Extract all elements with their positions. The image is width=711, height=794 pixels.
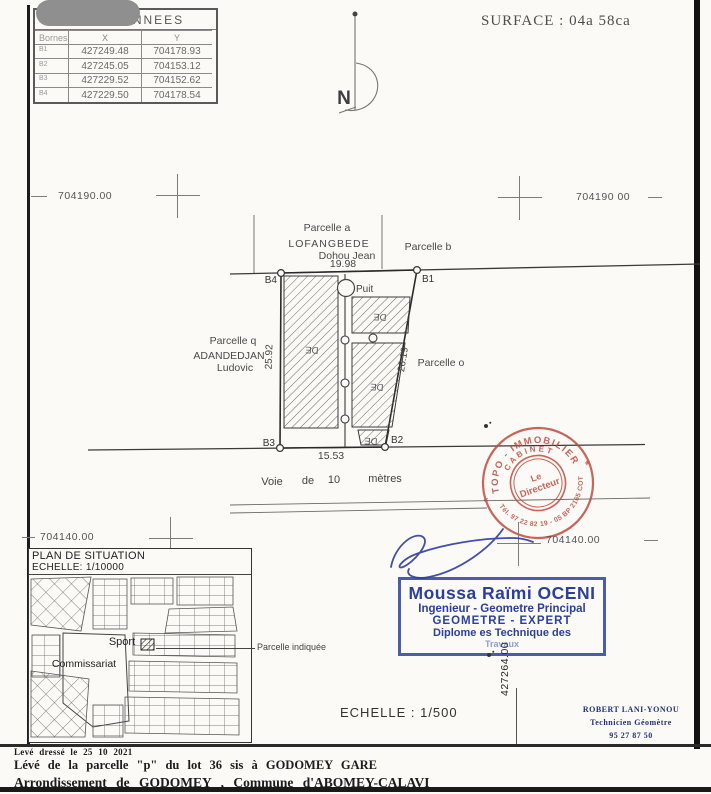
col-header-x: X <box>68 30 141 44</box>
corner-b2-marker <box>382 444 389 451</box>
map-block <box>165 607 237 633</box>
map-block <box>125 697 239 735</box>
grid-label-704190-right: 704190 00 <box>576 191 630 203</box>
corner-label-b2: B2 <box>391 435 404 446</box>
situation-map-title: PLAN DE SITUATION <box>29 549 251 562</box>
boundary-marker <box>369 334 377 342</box>
pencil-mark <box>487 653 492 658</box>
neighbor-owner-firstname: Ludovic <box>217 362 253 374</box>
map-indicated-parcel <box>141 639 154 650</box>
coordinates-grid: Bornes X Y B1 427249.48 704178.93 B2 427… <box>35 30 216 102</box>
neighbor-owner-name: LOFANGBEDE <box>288 238 369 250</box>
neighbor-parcelle-o: Parcelle o <box>418 357 465 369</box>
footer-date-line: Levé dressé le 25 10 2021 <box>14 747 430 757</box>
grid-tick <box>22 537 35 538</box>
map-block <box>32 635 60 677</box>
technician-role: Technicien Géomètre <box>576 717 686 730</box>
map-block <box>93 579 127 629</box>
boundary-marker <box>341 379 349 387</box>
corner-b3-marker <box>277 445 284 452</box>
road-edge-line <box>230 508 487 513</box>
well-circle <box>338 280 355 297</box>
boundary-marker <box>341 415 349 423</box>
subplot-label: DE <box>370 381 384 393</box>
corner-b4-marker <box>278 270 285 277</box>
signature <box>385 523 540 585</box>
north-label: N <box>337 88 351 109</box>
coord-y: 704178.54 <box>141 87 212 102</box>
scan-redaction-blob <box>36 0 140 26</box>
dim-left: 25.92 <box>264 344 276 370</box>
coord-y: 704152.62 <box>141 73 212 88</box>
grid-label-704140-left: 704140.00 <box>40 531 94 543</box>
map-commissariat-label: Commissariat <box>52 658 116 670</box>
map-block <box>177 577 233 605</box>
road-word: 10 <box>328 474 340 486</box>
neighbor-parcelle-q: Parcelle q <box>210 335 257 347</box>
coord-x: 427245.05 <box>68 58 141 73</box>
stamp-star-left: * <box>482 494 491 509</box>
map-block <box>131 578 173 604</box>
coord-x: 427229.50 <box>68 87 141 102</box>
coord-x: 427249.48 <box>68 44 141 59</box>
grid-tick <box>644 540 658 541</box>
coord-y: 704178.93 <box>141 44 212 59</box>
situation-map-drawing: Sport Commissariat <box>29 575 248 738</box>
map-block <box>93 705 123 737</box>
corner-label-b4: B4 <box>265 275 278 286</box>
survey-plan-document: COORDONNEES Bornes X Y B1 427249.48 7041… <box>0 0 711 794</box>
surface-label: SURFACE : 04a 58ca <box>481 13 631 30</box>
road-word: de <box>302 475 314 487</box>
situation-map-scale: ECHELLE: 1/10000 <box>29 562 251 575</box>
col-header-y: Y <box>141 30 212 44</box>
situation-map-box: PLAN DE SITUATION ECHELLE: 1/10000 <box>28 548 252 743</box>
map-block <box>31 671 89 737</box>
coord-x: 427229.52 <box>68 73 141 88</box>
neighbor-parcelle-b: Parcelle b <box>405 241 452 253</box>
road-word: Voie <box>261 476 282 488</box>
surveyor-name: Moussa Raïmi OCENI <box>401 583 603 603</box>
neighbor-parcelle-a: Parcelle a <box>304 222 351 234</box>
map-sport-label: Sport <box>109 636 135 648</box>
row-id: B1 <box>35 44 68 59</box>
footer-commune-line: Arrondissement de GODOMEY , Commune d'AB… <box>14 775 430 791</box>
footer-notes: Levé dressé le 25 10 2021 Lévé de la par… <box>14 747 430 791</box>
well-label: Puit <box>356 284 373 295</box>
corner-label-b3: B3 <box>263 438 276 449</box>
grid-tick <box>31 196 47 197</box>
main-scale-label: ECHELLE : 1/500 <box>340 705 458 720</box>
grid-label-vertical: 427264.00 <box>499 610 511 696</box>
north-arrow-dot <box>353 12 358 17</box>
footer-parcel-line: Lévé de la parcelle "p" du lot 36 sis à … <box>14 758 430 773</box>
north-arrow: N <box>325 8 415 123</box>
row-id: B3 <box>35 73 68 88</box>
map-block <box>31 577 91 631</box>
indicated-parcel-leader-line <box>156 648 255 649</box>
road-word: mètres <box>368 473 402 485</box>
neighbor-owner-name: ADANDEDJAN <box>193 350 264 362</box>
subplot-label: DE <box>364 435 378 447</box>
map-block <box>129 661 237 693</box>
grid-label-704140-right: 704140.00 <box>546 534 600 546</box>
coord-y: 704153.12 <box>141 58 212 73</box>
corner-label-b1: B1 <box>422 274 435 285</box>
neighbor-owner-firstname: Dohou Jean <box>319 250 376 262</box>
boundary-marker <box>341 336 349 344</box>
grid-tick <box>648 197 662 198</box>
stamp-star-right: * <box>584 457 593 472</box>
row-id: B4 <box>35 87 68 102</box>
row-id: B2 <box>35 58 68 73</box>
subplot-label: DE <box>305 344 319 356</box>
subplot-label: DE <box>373 311 387 323</box>
technician-name: ROBERT LANI-YONOU <box>576 704 686 717</box>
technician-stamp: ROBERT LANI-YONOU Technicien Géomètre 95… <box>576 704 686 742</box>
technician-phone: 95 27 87 50 <box>576 730 686 743</box>
grid-label-704190-left: 704190.00 <box>58 190 112 202</box>
indicated-parcel-label: Parcelle indiquée <box>257 642 326 652</box>
corner-b1-marker <box>414 267 421 274</box>
col-header-bornes: Bornes <box>35 30 68 44</box>
grid-vertical-line <box>516 688 517 744</box>
dim-bottom: 15.53 <box>318 450 344 462</box>
